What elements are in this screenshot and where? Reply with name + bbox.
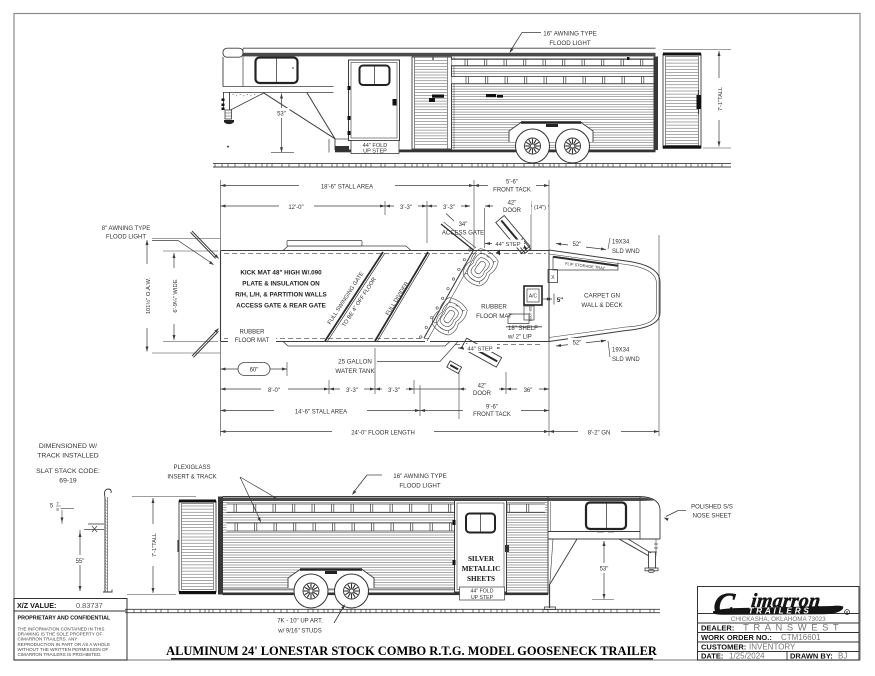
svg-text:SILVER: SILVER xyxy=(468,555,495,563)
svg-text:3'-3": 3'-3" xyxy=(388,388,400,394)
svg-text:A/C: A/C xyxy=(529,294,538,300)
svg-text:w/ 2" LIP: w/ 2" LIP xyxy=(507,335,532,341)
svg-text:5'-6": 5'-6" xyxy=(506,180,518,186)
svg-text:7'-1"TALL: 7'-1"TALL xyxy=(152,533,158,557)
svg-text:CTM16601: CTM16601 xyxy=(781,633,821,642)
svg-text:FLOOD LIGHT: FLOOD LIGHT xyxy=(399,483,440,490)
svg-text:FRONT TACK: FRONT TACK xyxy=(493,187,531,193)
svg-text:53": 53" xyxy=(277,112,286,118)
svg-text:19X34: 19X34 xyxy=(612,348,630,354)
svg-text:RUBBER: RUBBER xyxy=(481,304,507,311)
svg-text:6'-9¼" WIDE: 6'-9¼" WIDE xyxy=(173,279,179,312)
svg-text:FLOOD LIGHT: FLOOD LIGHT xyxy=(549,40,590,47)
svg-text:8'-2" GN: 8'-2" GN xyxy=(588,430,611,436)
svg-text:9'-6": 9'-6" xyxy=(486,404,498,410)
svg-text:BJ: BJ xyxy=(838,652,847,661)
svg-text:FRONT TACK: FRONT TACK xyxy=(473,412,511,418)
svg-text:18'-6" STALL AREA: 18'-6" STALL AREA xyxy=(321,184,373,190)
svg-text:SLD WND: SLD WND xyxy=(612,249,640,255)
svg-text:14'-6" STALL AREA: 14'-6" STALL AREA xyxy=(295,409,347,415)
svg-text:WATER TANK: WATER TANK xyxy=(335,368,375,375)
svg-text:16" AWNING TYPE: 16" AWNING TYPE xyxy=(543,31,596,38)
svg-text:8'-0": 8'-0" xyxy=(268,388,280,394)
svg-text:1/25/2024: 1/25/2024 xyxy=(729,652,765,661)
svg-text:3'-3": 3'-3" xyxy=(400,205,412,211)
svg-text:R/H, L/H, & PARTITION WALLS: R/H, L/H, & PARTITION WALLS xyxy=(235,292,327,299)
svg-text:5": 5" xyxy=(557,297,563,304)
svg-text:X: X xyxy=(551,275,555,281)
svg-text:PLEXIGLASS: PLEXIGLASS xyxy=(173,465,210,471)
svg-text:METALLIC: METALLIC xyxy=(462,565,501,573)
svg-text:ACCESS GATE: ACCESS GATE xyxy=(442,231,484,237)
svg-text:44" STEP: 44" STEP xyxy=(467,347,492,353)
svg-text:ACCESS GATE & REAR GATE: ACCESS GATE & REAR GATE xyxy=(236,303,326,310)
svg-text:SLD WND: SLD WND xyxy=(612,357,640,363)
svg-text:SHEETS: SHEETS xyxy=(467,575,495,583)
svg-text:42": 42" xyxy=(478,383,487,389)
svg-text:0.83737: 0.83737 xyxy=(76,601,103,610)
svg-text:CIMARRON TRAILERS IS PROHIBITE: CIMARRON TRAILERS IS PROHIBITED. xyxy=(18,652,102,657)
svg-text:DOOR: DOOR xyxy=(503,208,522,214)
svg-text:WALL & DECK: WALL & DECK xyxy=(581,302,623,309)
svg-text:TRANSWEST: TRANSWEST xyxy=(743,621,843,632)
svg-text:3'-3": 3'-3" xyxy=(443,205,455,211)
svg-text:8" AWNING TYPE: 8" AWNING TYPE xyxy=(102,226,150,232)
svg-text:53": 53" xyxy=(600,567,609,573)
svg-text:34": 34" xyxy=(459,222,468,228)
svg-text:R: R xyxy=(846,611,849,615)
svg-text:POLISHED S/S: POLISHED S/S xyxy=(691,505,733,511)
svg-text:19X34: 19X34 xyxy=(612,240,630,246)
svg-text:7'-1"TALL: 7'-1"TALL xyxy=(718,87,724,111)
svg-text:RUBBER: RUBBER xyxy=(239,330,265,336)
svg-text:52": 52" xyxy=(573,341,582,347)
svg-text:44" STEP: 44" STEP xyxy=(495,242,520,248)
svg-text:52": 52" xyxy=(573,242,582,248)
svg-text:NOSE SHEET: NOSE SHEET xyxy=(693,514,732,520)
svg-text:CARPET GN: CARPET GN xyxy=(584,293,620,300)
svg-text:7K - 10" UP ART.: 7K - 10" UP ART. xyxy=(277,619,323,625)
svg-text:44" FOLD: 44" FOLD xyxy=(471,589,494,595)
svg-text:101½" O.A.W.: 101½" O.A.W. xyxy=(145,277,152,314)
svg-text:DIMENSIONED W/: DIMENSIONED W/ xyxy=(39,443,97,450)
svg-text:DATE:: DATE: xyxy=(701,652,723,661)
svg-text:TRACK INSTALLED: TRACK INSTALLED xyxy=(37,453,99,460)
svg-text:FLOOR MAT: FLOOR MAT xyxy=(476,313,512,320)
svg-text:UP STEP: UP STEP xyxy=(363,149,387,155)
svg-text:24'-0" FLOOR LENGTH: 24'-0" FLOOR LENGTH xyxy=(351,430,415,436)
svg-text:FLOOD LIGHT: FLOOD LIGHT xyxy=(106,235,146,241)
svg-text:3'-3": 3'-3" xyxy=(346,388,358,394)
svg-text:12'-0": 12'-0" xyxy=(288,205,303,211)
svg-text:INSERT & TRACK: INSERT & TRACK xyxy=(167,475,216,481)
svg-text:16" AWNING TYPE: 16" AWNING TYPE xyxy=(393,473,446,480)
svg-text:KICK MAT 48" HIGH W/.090: KICK MAT 48" HIGH W/.090 xyxy=(240,270,322,277)
svg-text:TRAILERS: TRAILERS xyxy=(748,607,811,616)
svg-text:X/Z VALUE:: X/Z VALUE: xyxy=(17,601,56,610)
svg-text:36": 36" xyxy=(524,388,533,394)
svg-text:CUSTOMER:: CUSTOMER: xyxy=(701,642,746,651)
svg-text:60": 60" xyxy=(250,368,259,374)
svg-text:DRAWN BY:: DRAWN BY: xyxy=(790,652,833,661)
svg-text:UP STEP: UP STEP xyxy=(471,595,494,601)
svg-text:FLOOR MAT: FLOOR MAT xyxy=(235,338,270,344)
svg-text:DOOR: DOOR xyxy=(473,391,492,397)
svg-text:69-19: 69-19 xyxy=(59,478,77,485)
svg-text:PROPRIETARY AND CONFIDENTIAL: PROPRIETARY AND CONFIDENTIAL xyxy=(18,616,112,622)
svg-text:ALUMINUM 24' LONESTAR STOCK CO: ALUMINUM 24' LONESTAR STOCK COMBO R.T.G.… xyxy=(166,644,658,658)
svg-text:DEALER:: DEALER: xyxy=(701,623,734,632)
svg-text:55": 55" xyxy=(76,559,85,565)
svg-text:42": 42" xyxy=(508,200,517,206)
svg-text:WORK ORDER NO.:: WORK ORDER NO.: xyxy=(701,633,772,642)
svg-text:w/ 9/16" STUDS: w/ 9/16" STUDS xyxy=(277,629,321,635)
svg-text:INVENTORY: INVENTORY xyxy=(749,642,796,651)
svg-text:(14"): (14") xyxy=(534,205,546,211)
svg-text:SLAT STACK CODE:: SLAT STACK CODE: xyxy=(36,468,100,475)
svg-text:25 GALLON: 25 GALLON xyxy=(338,359,372,366)
svg-text:PLATE & INSULATION ON: PLATE & INSULATION ON xyxy=(242,281,320,288)
